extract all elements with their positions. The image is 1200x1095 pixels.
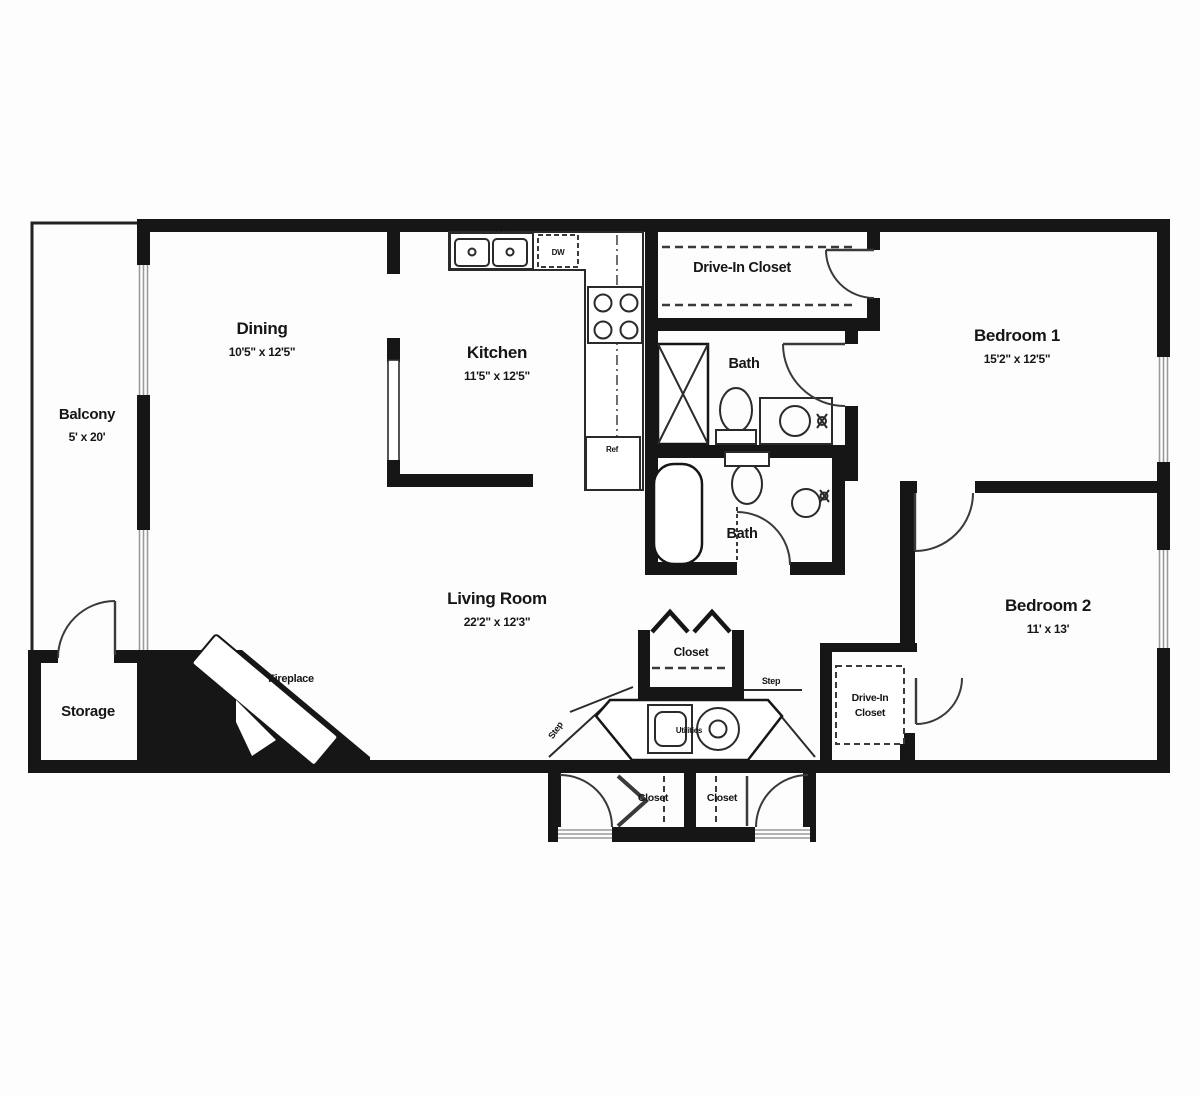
drive-in-closet-bedroom2: Drive-In Closet <box>836 666 962 744</box>
fireplace-label: Fireplace <box>268 673 314 685</box>
pass-through <box>388 360 399 462</box>
living-dims: 22'2" x 12'3" <box>464 615 531 629</box>
dishwasher-label: DW <box>552 248 565 257</box>
drive-in2-label-line2: Closet <box>855 707 886 719</box>
drive-in-closet-top: Drive-In Closet <box>662 247 874 305</box>
bedroom2-dims: 11' x 13' <box>1027 622 1070 636</box>
bedroom1-label: Bedroom 1 <box>974 326 1060 345</box>
storage-room: Storage <box>28 601 150 773</box>
storage-door-arc <box>58 601 115 658</box>
hall-closet-left-label: Closet <box>638 792 669 804</box>
bathtub <box>654 464 702 564</box>
balcony-dims: 5' x 20' <box>69 430 106 444</box>
toilet-lower <box>732 464 762 504</box>
dining-dims: 10'5" x 12'5" <box>229 345 296 359</box>
bifold-door-right <box>694 612 730 632</box>
vanity-upper <box>760 398 832 444</box>
window-bedroom1 <box>1157 357 1170 462</box>
storage-label: Storage <box>61 703 115 720</box>
bedroom1-room: Bedroom 1 15'2" x 12'5" <box>974 326 1060 366</box>
entry-door-arc-right <box>756 775 808 827</box>
step-right-label: Step <box>762 676 781 686</box>
window-balcony-lower <box>137 530 150 650</box>
bath-lower: Bath <box>654 452 829 565</box>
kitchen-dims: 11'5" x 12'5" <box>464 369 530 383</box>
stove <box>588 287 642 343</box>
entry-vestibule: Closet Closet <box>548 773 816 842</box>
dining-label: Dining <box>236 319 287 338</box>
bath-upper-door-arc <box>783 344 845 406</box>
bath-lower-label: Bath <box>726 526 757 542</box>
balcony-room: Balcony 5' x 20' <box>32 223 137 652</box>
dishwasher: DW <box>538 235 578 267</box>
dining-room: Dining 10'5" x 12'5" <box>229 319 296 359</box>
utilities-label: Utilities <box>676 726 703 735</box>
living-room: Living Room 22'2" x 12'3" <box>447 589 547 629</box>
hall-closet-left: Closet <box>618 776 669 826</box>
bedroom2-label: Bedroom 2 <box>1005 596 1091 615</box>
balcony-label: Balcony <box>59 406 116 423</box>
bedroom2-door-arc <box>915 493 973 551</box>
utilities-bay: Utilities <box>596 700 782 760</box>
refrigerator-label: Ref <box>606 445 619 454</box>
hall-closet-right-label: Closet <box>707 792 738 804</box>
floor-plan-page: Balcony 5' x 20' <box>0 0 1200 1095</box>
kitchen-room: DW Ref Kitchen 11'5" x 12'5" <box>449 228 643 490</box>
drive-in2-label-line1: Drive-In <box>852 692 889 704</box>
bath-upper-label: Bath <box>728 356 759 372</box>
living-label: Living Room <box>447 589 547 608</box>
entry-threshold-right <box>755 830 810 838</box>
window-balcony-upper <box>137 265 150 395</box>
sink-lower <box>792 489 829 517</box>
refrigerator: Ref <box>586 437 640 490</box>
bedroom1-dims: 15'2" x 12'5" <box>984 352 1051 366</box>
fireplace: Fireplace <box>150 634 370 773</box>
floor-plan: Balcony 5' x 20' <box>0 0 1200 1095</box>
bath-upper: Bath <box>658 344 845 444</box>
central-closet: Closet <box>638 612 744 699</box>
closet-door-arc <box>826 250 874 298</box>
entry-door-arc-left <box>560 775 612 827</box>
toilet-upper <box>720 388 752 432</box>
drive-in2-door-arc <box>916 678 962 724</box>
central-closet-label: Closet <box>674 645 709 659</box>
kitchen-label: Kitchen <box>467 343 527 362</box>
bifold-door-left <box>652 612 688 632</box>
window-bedroom2 <box>1157 550 1170 648</box>
step-left-label: Step <box>546 719 565 740</box>
hall-closet-right: Closet <box>707 776 747 826</box>
entry-threshold-left <box>558 830 612 838</box>
drive-in-closet-top-label: Drive-In Closet <box>693 260 791 276</box>
bedroom2-room: Bedroom 2 11' x 13' <box>915 493 1091 636</box>
